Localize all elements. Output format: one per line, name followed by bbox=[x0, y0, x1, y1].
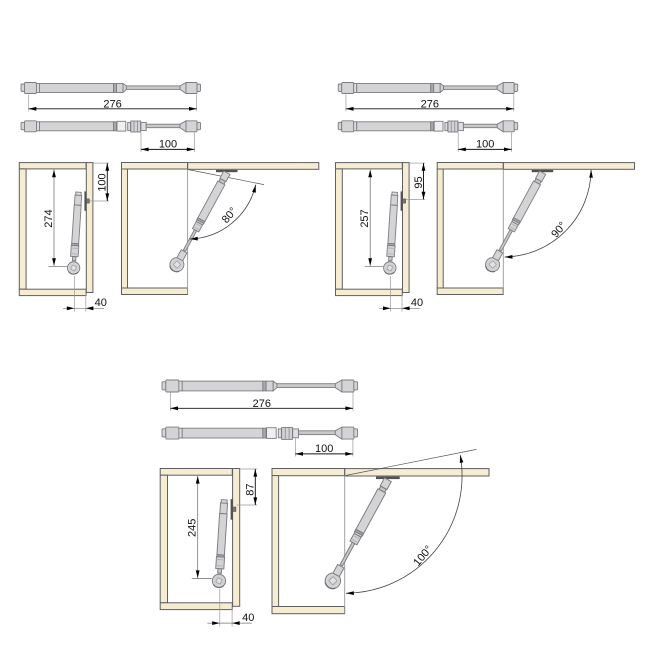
svg-text:276: 276 bbox=[253, 398, 271, 410]
svg-text:276: 276 bbox=[421, 98, 439, 110]
svg-text:100: 100 bbox=[476, 139, 494, 151]
svg-text:100: 100 bbox=[315, 443, 333, 455]
svg-text:245: 245 bbox=[187, 519, 199, 537]
svg-text:100: 100 bbox=[159, 139, 177, 151]
svg-text:276: 276 bbox=[103, 98, 121, 110]
svg-text:95: 95 bbox=[413, 176, 425, 188]
svg-text:40: 40 bbox=[242, 612, 254, 624]
svg-text:40: 40 bbox=[411, 297, 423, 309]
svg-text:100: 100 bbox=[97, 173, 109, 191]
svg-text:87: 87 bbox=[245, 483, 257, 495]
svg-text:257: 257 bbox=[359, 209, 371, 227]
svg-text:40: 40 bbox=[95, 297, 107, 309]
svg-text:274: 274 bbox=[43, 209, 55, 227]
